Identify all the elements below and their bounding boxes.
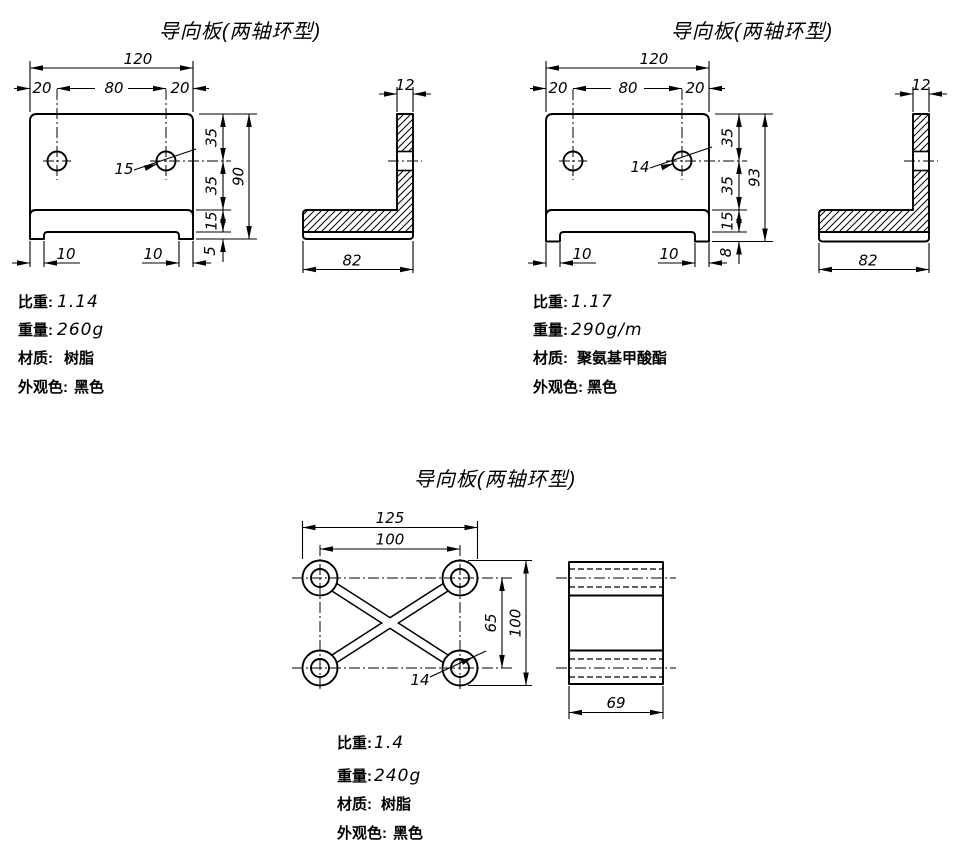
drawing-title: 导向板(两轴环型) [671, 21, 833, 43]
dim-hole-spacing: 100 [320, 531, 460, 550]
dim-thickness: 12 [379, 76, 431, 112]
dim-text-base: 69 [606, 694, 625, 712]
dim-text-hole-dia: 15 [114, 160, 133, 178]
dim-text-h-foot: 8 [717, 248, 735, 258]
dim-text-base: 82 [858, 252, 877, 270]
spec-label: 材质: [533, 349, 568, 367]
spec-label: 比重: [533, 293, 568, 311]
spec-label: 外观色: [17, 378, 68, 396]
dim-text-h-mid: 35 [719, 176, 737, 195]
drawing-1: 导向板(两轴环型) 120 [12, 21, 431, 396]
spec-value: 1.4 [374, 733, 404, 753]
dim-text-row-span: 65 [482, 613, 500, 632]
dim-text-height: 90 [230, 167, 248, 186]
dim-text-foot-left: 10 [572, 245, 591, 263]
dim-text-h-top: 35 [203, 128, 221, 147]
spec-value: 黑色 [74, 378, 104, 396]
section-outline [569, 562, 663, 684]
dim-text-width: 120 [640, 50, 669, 68]
drawing-3: 导向板(两轴环型) 1 [292, 469, 676, 842]
dim-text-thickness: 12 [911, 76, 930, 94]
side-view: 12 82 [303, 76, 431, 273]
dim-text-base: 82 [342, 252, 361, 270]
dim-text-seg-right: 20 [685, 79, 704, 97]
dim-text-seg-left: 20 [548, 79, 567, 97]
hatch-upper [913, 114, 929, 152]
spec-label: 重量: [337, 767, 372, 785]
dim-text-h-rail: 15 [203, 211, 221, 230]
drawing-title: 导向板(两轴环型) [414, 469, 576, 491]
plate-outline [30, 114, 193, 239]
spec-value: 260g [57, 320, 104, 340]
dim-text-width: 125 [376, 509, 405, 527]
spec-label: 重量: [18, 321, 53, 339]
dim-text-foot-right: 10 [143, 245, 162, 263]
dim-text-seg-mid: 80 [104, 79, 123, 97]
dim-text-seg-left: 20 [32, 79, 51, 97]
dim-text-h-mid: 35 [203, 176, 221, 195]
spec-list: 比重: 1.14 重量: 260g 材质: 树脂 外观色: 黑色 [17, 292, 104, 396]
spec-value: 聚氨基甲酸酯 [576, 349, 667, 367]
drawing-2: 导向板(两轴环型) 120 [528, 21, 947, 396]
spec-value: 1.14 [57, 292, 99, 312]
foot-strip [819, 232, 929, 242]
hatch-flange [819, 210, 913, 232]
front-view [292, 545, 512, 692]
dim-feet: 10 10 [12, 245, 211, 263]
dim-height-total: 93 [746, 114, 766, 242]
dim-thickness: 12 [895, 76, 947, 112]
dim-base: 82 [303, 241, 413, 273]
dim-text-seg-mid: 80 [618, 79, 637, 97]
plate-outline [546, 114, 709, 242]
foot-strip [303, 232, 413, 239]
dim-text-height: 93 [746, 168, 764, 187]
dim-text-foot-right: 10 [659, 245, 678, 263]
dim-text-h-rail: 15 [719, 211, 737, 230]
dim-row-span: 65 [482, 578, 502, 668]
spec-list: 比重: 1.4 重量: 240g 材质: 树脂 外观色: 黑色 [336, 733, 423, 842]
dim-text-seg-right: 20 [170, 79, 189, 97]
dim-text-hole-dia: 14 [630, 158, 649, 176]
dim-base: 69 [569, 686, 663, 719]
dim-height-total: 100 [507, 561, 527, 686]
spec-value: 黑色 [587, 378, 617, 396]
spec-label: 重量: [533, 321, 568, 339]
side-view: 12 82 [819, 76, 947, 273]
spec-label: 外观色: [532, 378, 583, 396]
spec-label: 材质: [337, 795, 372, 813]
spec-value: 290g/m [571, 320, 643, 340]
cad-sheet: 导向板(两轴环型) 120 [0, 0, 960, 853]
spec-label: 外观色: [336, 824, 387, 842]
dim-text-hole-span: 100 [376, 531, 405, 549]
dim-text-h-foot: 5 [201, 246, 219, 256]
dim-text-h-top: 35 [719, 128, 737, 147]
dim-hole-spacing: 20 80 20 [14, 79, 209, 97]
hatch-lower [913, 171, 929, 233]
hatch-flange [303, 210, 397, 232]
spec-value: 240g [374, 766, 421, 786]
spec-label: 比重: [18, 293, 53, 311]
dim-text-thickness: 12 [395, 76, 414, 94]
spec-value: 树脂 [64, 349, 94, 367]
dim-height-chain: 35 35 15 5 [201, 114, 223, 262]
spec-label: 材质: [18, 349, 53, 367]
dim-width: 125 [303, 509, 478, 528]
spec-value: 1.17 [571, 292, 613, 312]
dim-height-total: 90 [230, 114, 250, 239]
dim-text-height: 100 [507, 609, 525, 638]
dim-width: 120 [30, 50, 193, 68]
dim-text-foot-left: 10 [56, 245, 75, 263]
dim-width: 120 [546, 50, 709, 68]
spec-label: 比重: [337, 734, 372, 752]
drawing-title: 导向板(两轴环型) [159, 21, 321, 43]
hatch-upper [397, 114, 413, 152]
hatch-lower [397, 171, 413, 233]
dim-base: 82 [819, 243, 929, 273]
dim-text-width: 120 [124, 50, 153, 68]
dim-text-hole-dia: 14 [410, 671, 429, 689]
side-view: 69 [556, 562, 676, 719]
spec-value: 树脂 [381, 795, 411, 813]
dim-feet: 10 10 [528, 245, 727, 263]
spec-list: 比重: 1.17 重量: 290g/m 材质: 聚氨基甲酸酯 外观色: 黑色 [532, 292, 667, 396]
spec-value: 黑色 [393, 824, 423, 842]
dim-hole-spacing: 20 80 20 [530, 79, 725, 97]
